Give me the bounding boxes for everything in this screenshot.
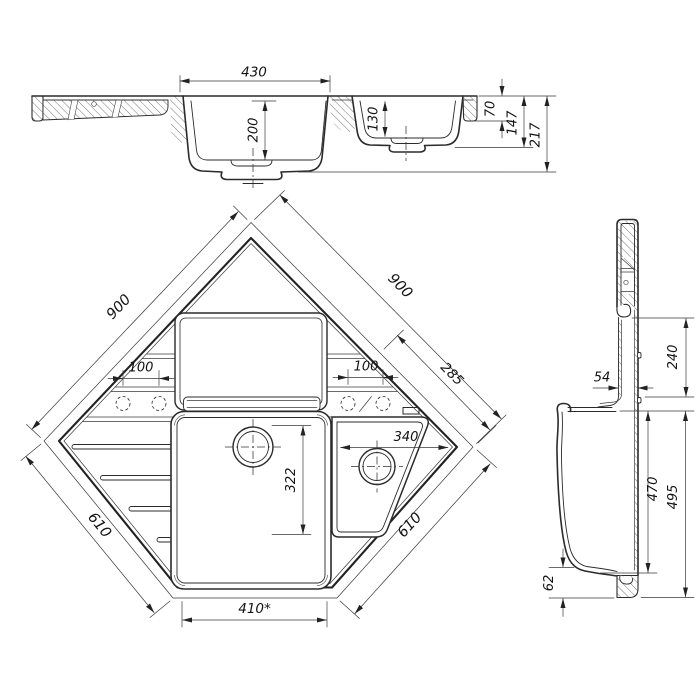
front-section-view: 430 200 130 70 147 bbox=[32, 65, 556, 191]
dim-label-495: 495 bbox=[666, 485, 681, 510]
wall-left-line bbox=[598, 318, 619, 408]
dim-label-62: 62 bbox=[542, 575, 557, 592]
fixing-nub bbox=[638, 398, 642, 404]
dim-label-147: 147 bbox=[506, 110, 521, 136]
dim-label-200: 200 bbox=[247, 118, 262, 143]
drawing-canvas: 430 200 130 70 147 bbox=[0, 0, 700, 700]
dim-label-217: 217 bbox=[529, 122, 544, 148]
dim-wall-thickness: 54 bbox=[593, 371, 653, 389]
deck-hatch bbox=[43, 100, 168, 120]
bowl-divider-hatch bbox=[329, 96, 356, 133]
dim-label-240: 240 bbox=[666, 345, 681, 370]
dim-label-340: 340 bbox=[394, 430, 419, 445]
technical-drawing: 430 200 130 70 147 bbox=[0, 0, 700, 700]
dim-edge-bottom-left: 610 bbox=[21, 444, 170, 618]
dim-bowl-depth-outer: 495 bbox=[641, 412, 694, 598]
cutting-board-outer bbox=[175, 313, 327, 410]
tap-hole bbox=[152, 397, 166, 411]
deck-fixing-hole bbox=[92, 102, 97, 107]
dim-label-430: 430 bbox=[241, 65, 267, 81]
dim-label-610-left: 610 bbox=[84, 510, 114, 542]
dim-label-100-right: 100 bbox=[354, 360, 379, 375]
dim-label-54: 54 bbox=[594, 371, 611, 386]
dim-bottom-flange: 62 bbox=[542, 549, 614, 617]
dim-tap-span-left: 100 bbox=[108, 361, 174, 386]
dim-label-70: 70 bbox=[484, 101, 499, 118]
side-bowl-outer bbox=[557, 404, 617, 577]
dim-label-900-left: 900 bbox=[104, 292, 135, 323]
side-bowl-inner bbox=[561, 412, 617, 572]
back-panel-hole bbox=[624, 280, 628, 284]
tap-hole bbox=[116, 397, 130, 411]
dim-label-322: 322 bbox=[284, 468, 299, 493]
dim-label-130: 130 bbox=[367, 107, 382, 132]
left-cap-hatch bbox=[32, 96, 43, 121]
dim-bowl-top-width: 430 bbox=[180, 65, 330, 93]
dim-label-100-left: 100 bbox=[129, 361, 154, 376]
dim-label-610-right: 610 bbox=[395, 510, 425, 541]
top-plan-view: 100 100 322 340 900 bbox=[21, 191, 506, 628]
dim-front-edge: 410* bbox=[182, 601, 327, 627]
dim-label-410: 410* bbox=[238, 601, 271, 617]
dim-label-900-right: 900 bbox=[384, 271, 415, 302]
dim-tap-span-right: 100 bbox=[333, 360, 398, 385]
side-section-view: 54 240 470 495 62 bbox=[542, 220, 694, 617]
main-bowl-back-rim bbox=[184, 397, 321, 411]
tap-hole-slash bbox=[360, 397, 372, 412]
tap-hole bbox=[376, 397, 390, 411]
dim-back-panel-height: 240 bbox=[632, 318, 694, 397]
tap-hole bbox=[341, 397, 355, 411]
dim-label-470: 470 bbox=[646, 477, 661, 502]
fixing-nub bbox=[638, 353, 642, 359]
dim-label-285: 285 bbox=[437, 359, 467, 389]
